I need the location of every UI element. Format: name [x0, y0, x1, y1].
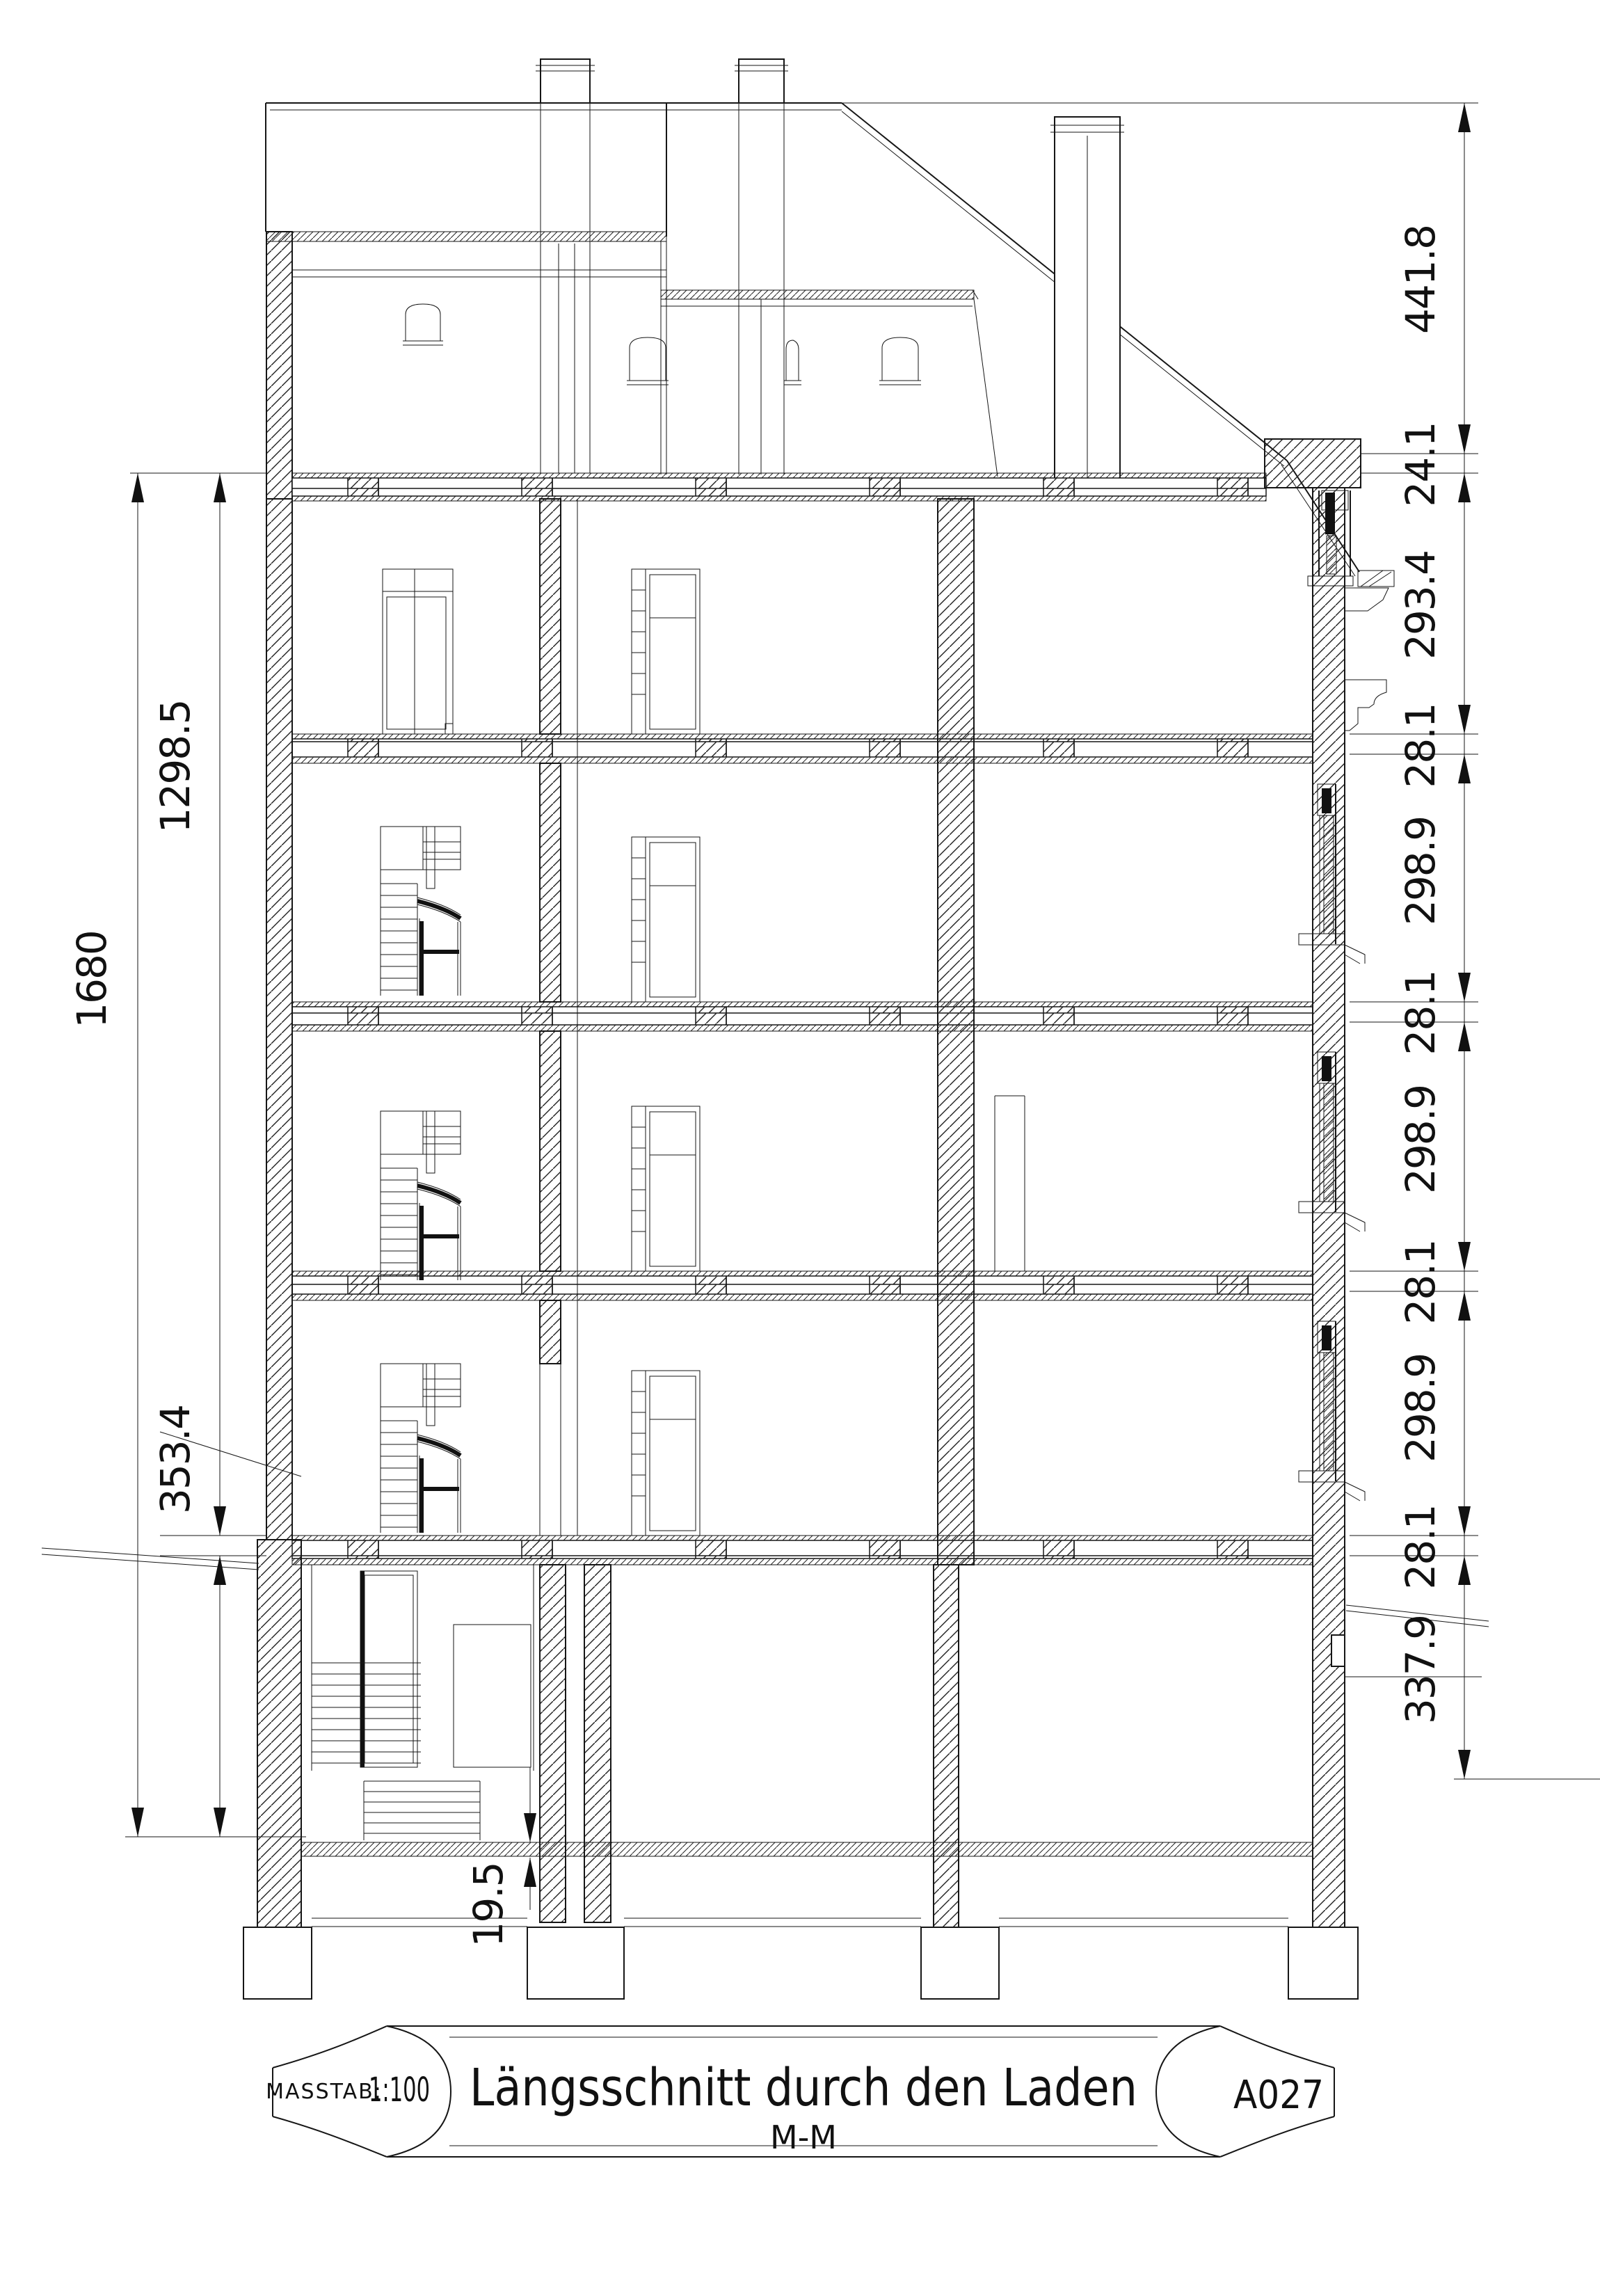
interior-wall-b-ground: [934, 1565, 959, 1927]
interior-wall-a-ground: [540, 1565, 566, 1922]
dim-label: 298.9: [1397, 1085, 1444, 1194]
pavement-left: [42, 1548, 259, 1570]
interior-wall-a: [540, 499, 561, 734]
left-outer-wall: [266, 499, 292, 1540]
attic-arched-window: [627, 337, 669, 385]
stair-2f: [381, 1111, 461, 1280]
chimney-1: [536, 59, 595, 473]
building-section: [42, 59, 1489, 1999]
section-drawing: 441.8 24.1 293.4 28.1 298.9 28.1 298.9 2…: [0, 0, 1600, 2296]
chimney-2: [735, 59, 788, 475]
door-mid-1f: [632, 1371, 700, 1536]
attic-arched-window: [879, 337, 921, 385]
entrance-ground: [312, 1565, 534, 1840]
right-outer-wall: [1313, 488, 1345, 1927]
ground-floor-slab: [301, 1842, 1313, 1856]
door-mid-2f: [632, 1106, 700, 1271]
dim-label: 441.8: [1397, 225, 1444, 334]
left-dimension-chain: 1680 1298.5 353.4 19.5: [68, 473, 536, 1947]
attic-arched-window: [784, 340, 801, 385]
floor-slab: [292, 1002, 1313, 1031]
attic: [266, 232, 978, 499]
door-right-2f: [995, 1096, 1025, 1271]
attic-arched-window: [403, 304, 443, 345]
floor-slab: [292, 734, 1313, 763]
chimney-3: [1050, 117, 1124, 480]
dim-label: 1680: [68, 931, 115, 1028]
interior-wall-a: [540, 1031, 561, 1271]
roof: [266, 103, 1478, 576]
left-outer-wall-base: [257, 1540, 301, 1927]
right-dimension-chain: 441.8 24.1 293.4 28.1 298.9 28.1 298.9 2…: [1350, 103, 1600, 1779]
door-mid-4f: [632, 569, 700, 734]
dim-label: 28.1: [1397, 1505, 1444, 1589]
stair-1f: [381, 1364, 461, 1533]
footing: [527, 1927, 624, 1999]
dim-label: 298.9: [1397, 817, 1444, 925]
dim-label: 293.4: [1397, 551, 1444, 660]
title-block: MASSTAB: 1:100 Längsschnitt durch den La…: [266, 2026, 1334, 2157]
interior-wall-a: [540, 763, 561, 1002]
dim-label: 28.1: [1397, 703, 1444, 788]
dim-label: 337.9: [1397, 1616, 1444, 1724]
drawing-sheet: 441.8 24.1 293.4 28.1 298.9 28.1 298.9 2…: [0, 0, 1600, 2296]
dim-label: 19.5: [465, 1863, 512, 1947]
door-mid-3f: [632, 837, 700, 1002]
dim-label: 24.1: [1397, 422, 1444, 507]
section-mark: M-M: [770, 2119, 837, 2156]
door-4f: [383, 569, 453, 734]
footing: [921, 1927, 999, 1999]
interior-wall-a: [540, 1300, 561, 1364]
interior-wall-b: [938, 499, 974, 1565]
stair-3f: [381, 827, 461, 996]
sheet-number: A027: [1233, 2073, 1324, 2118]
foundation: [243, 1918, 1358, 1999]
drawing-title: Längsschnitt durch den Laden: [470, 2058, 1137, 2118]
interior-wall-a-ground: [584, 1565, 611, 1922]
floor-slab: [292, 1271, 1313, 1300]
floor-slab: [292, 1536, 1313, 1565]
dim-label: 28.1: [1397, 971, 1444, 1055]
gutter: [1345, 571, 1394, 611]
dim-label: 1298.5: [152, 701, 199, 834]
dim-label: 28.1: [1397, 1240, 1444, 1324]
attic-floor-slab: [292, 473, 1266, 501]
scale-value: 1:100: [369, 2071, 430, 2110]
main-cornice: [1345, 680, 1386, 731]
footing: [243, 1927, 312, 1999]
basement-window: [1331, 1635, 1345, 1666]
scale-label: MASSTAB:: [266, 2080, 383, 2104]
dim-label: 353.4: [152, 1405, 199, 1514]
eaves-block: [1265, 439, 1361, 488]
dim-label: 298.9: [1397, 1354, 1444, 1462]
footing: [1288, 1927, 1358, 1999]
